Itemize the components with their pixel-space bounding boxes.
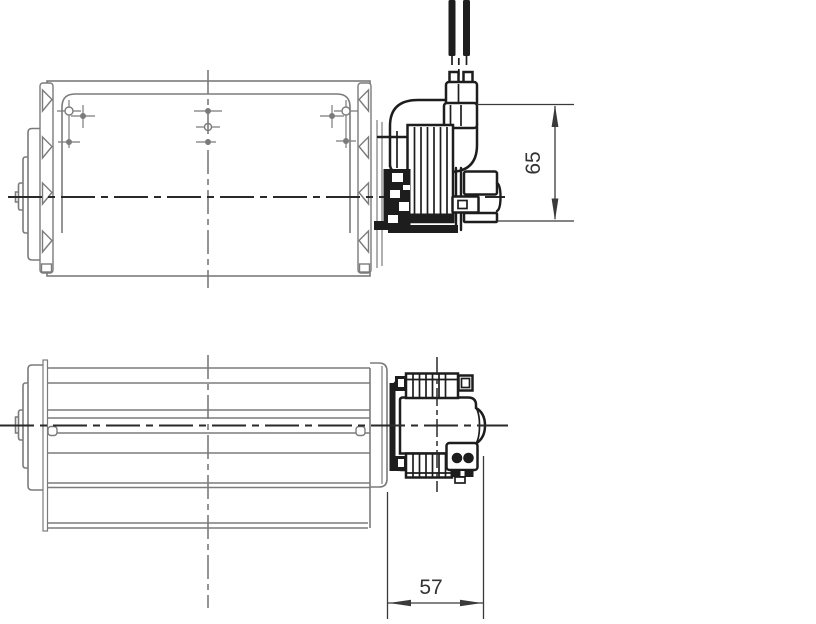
dimension-65: 65 xyxy=(477,105,574,222)
dimension-57: 57 xyxy=(388,456,484,619)
stator-stack-lower xyxy=(395,454,452,478)
terminal-block-bottom-view xyxy=(447,443,478,483)
left-end-cap-bottom xyxy=(16,365,44,490)
mounting-flange-right xyxy=(358,83,371,273)
stator-stack-upper xyxy=(395,374,473,399)
dimension-65-label: 65 xyxy=(522,151,545,174)
top-view: 65 xyxy=(8,0,574,288)
motor-top-view xyxy=(374,0,501,233)
drawing-page: 65 xyxy=(0,0,816,624)
blower-technical-drawing: 65 xyxy=(0,0,816,624)
bottom-view: 57 xyxy=(0,355,508,619)
mounting-flange-left xyxy=(40,83,53,273)
left-end-cap-top xyxy=(16,129,41,261)
blower-housing-bottom xyxy=(43,360,370,531)
stator-stack-top-view xyxy=(406,125,455,223)
lead-wires xyxy=(449,0,471,80)
terminal-connector xyxy=(444,72,477,128)
dimension-57-label: 57 xyxy=(419,576,442,599)
motor-bracket-right xyxy=(453,168,501,230)
mounting-holes-right xyxy=(320,100,358,148)
